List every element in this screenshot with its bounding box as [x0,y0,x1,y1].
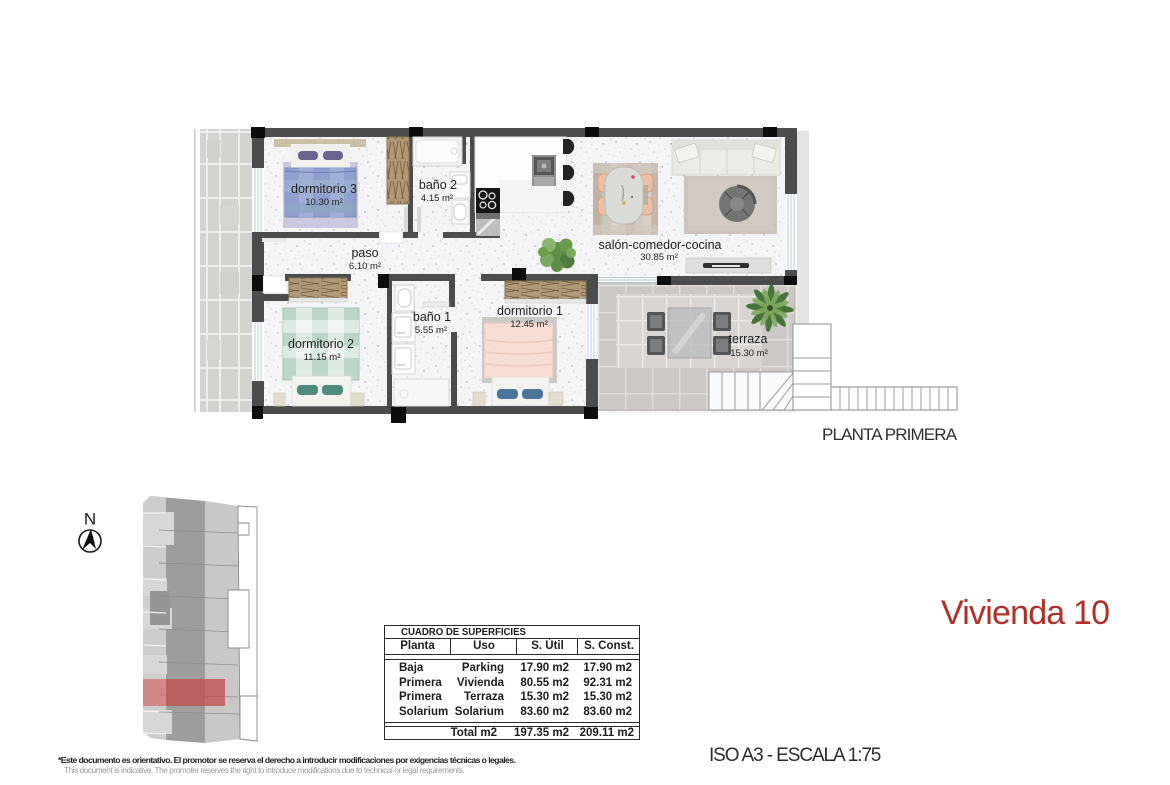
svg-text:10.30 m²: 10.30 m² [305,197,343,208]
svg-text:30.85 m²: 30.85 m² [640,252,678,263]
svg-text:paso: paso [351,246,378,260]
svg-text:dormitorio 1: dormitorio 1 [497,304,563,318]
svg-text:dormitorio 3: dormitorio 3 [291,182,357,196]
svg-text:salón-comedor-cocina: salón-comedor-cocina [599,238,722,252]
svg-text:N: N [84,510,96,529]
svg-text:baño 1: baño 1 [413,310,451,324]
svg-text:12.45 m²: 12.45 m² [510,319,548,330]
svg-text:15.30 m²: 15.30 m² [730,348,768,359]
svg-text:terraza: terraza [729,332,768,346]
svg-text:11.15 m²: 11.15 m² [304,352,341,363]
svg-text:baño 2: baño 2 [419,178,457,192]
svg-text:5.55 m²: 5.55 m² [415,325,447,336]
svg-text:6.10 m²: 6.10 m² [349,261,381,272]
svg-text:dormitorio 2: dormitorio 2 [288,337,354,351]
svg-text:4.15 m²: 4.15 m² [421,193,453,204]
